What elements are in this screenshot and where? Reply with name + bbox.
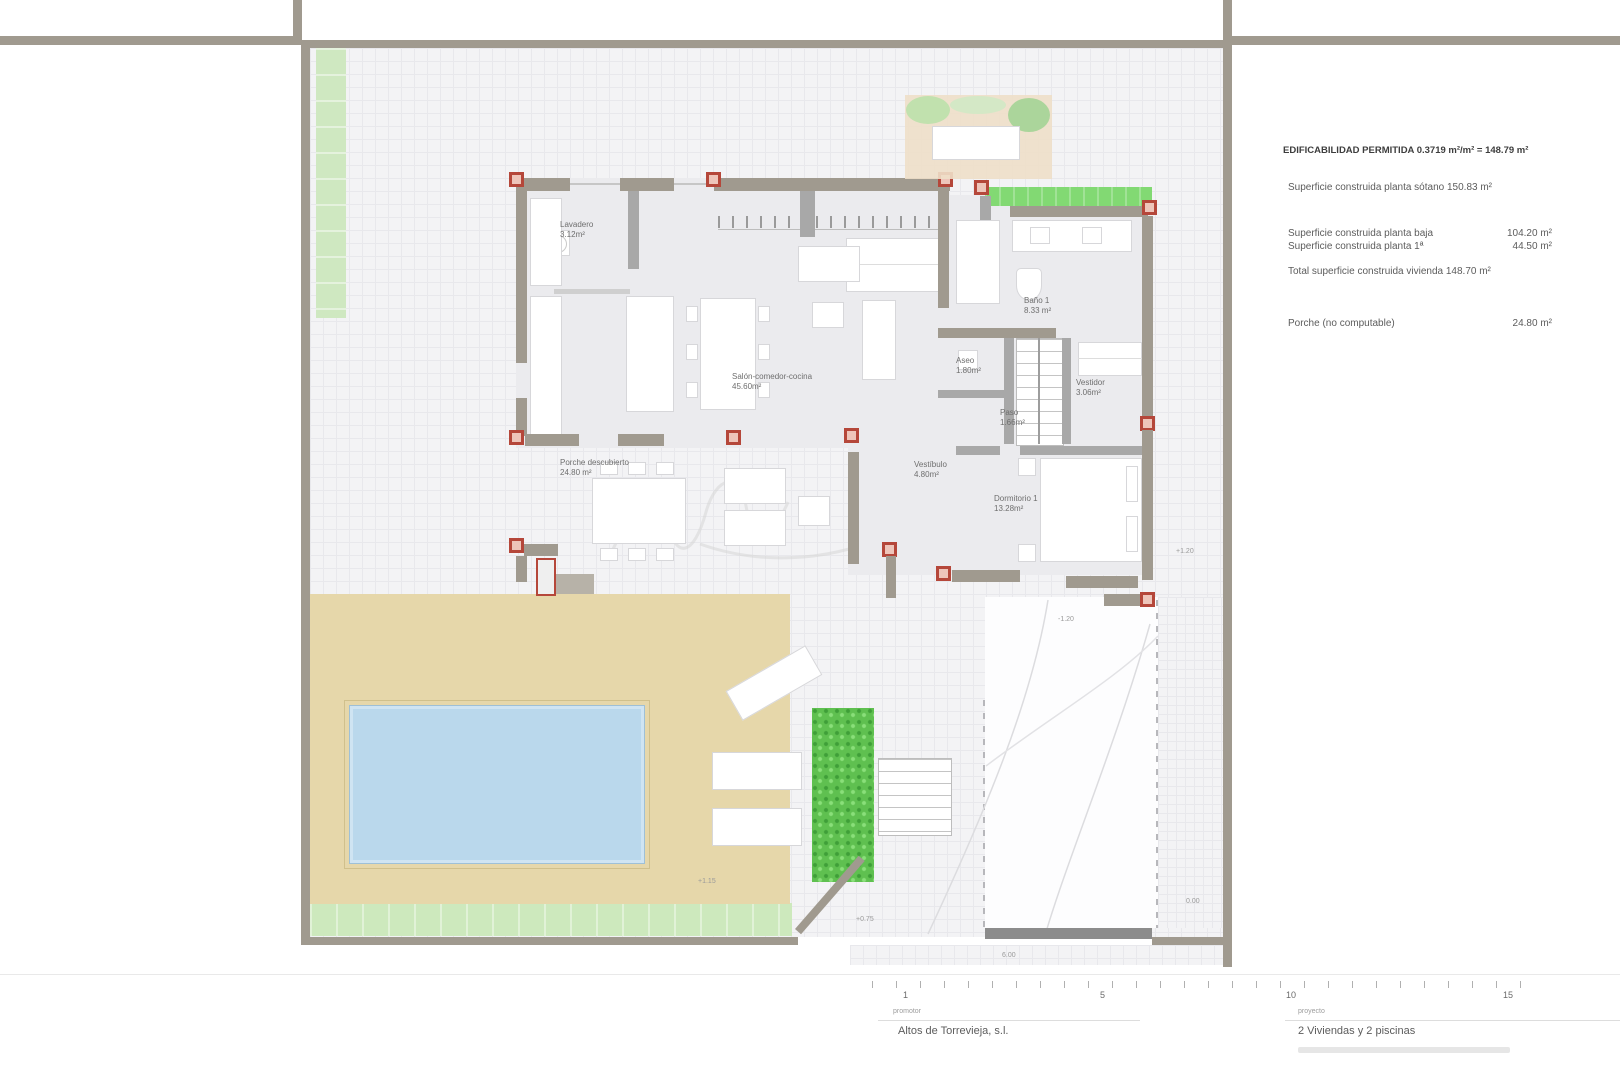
window-mullions <box>718 216 946 228</box>
shower <box>956 220 1000 304</box>
summary-row: Superficie construida planta sótano 150.… <box>1288 182 1552 193</box>
chair <box>686 306 698 322</box>
plant <box>906 96 950 124</box>
wall-segment <box>956 446 1000 455</box>
floor-plan: Lavadero3.12m² Salón-comedor-cocina45.60… <box>0 0 1620 1080</box>
scale-tick-label: 5 <box>1100 990 1105 1000</box>
nightstand <box>1018 458 1036 476</box>
neighbor-wall <box>1223 36 1620 45</box>
address-line-illegible <box>1298 1047 1510 1053</box>
promoter-name: Altos de Torrevieja, s.l. <box>898 1025 1008 1037</box>
kitchen-counter <box>530 296 562 442</box>
footer-rule <box>878 1020 1140 1021</box>
column-pillar <box>509 538 524 553</box>
scale-tick-label: 10 <box>1286 990 1296 1000</box>
pillow <box>1126 466 1138 502</box>
room-label-paso: Paso1.66m² <box>1000 408 1025 429</box>
level-annotation: +0.75 <box>856 916 874 923</box>
chair <box>656 462 674 475</box>
counter-edge <box>554 289 630 294</box>
chair <box>628 548 646 561</box>
kitchen-island <box>626 296 674 412</box>
column-pillar <box>844 428 859 443</box>
project-label: proyecto <box>1298 1008 1325 1015</box>
room-label-vestidor: Vestidor3.06m² <box>1076 378 1105 399</box>
chair <box>656 548 674 561</box>
entrance-gate <box>985 928 1152 939</box>
chair <box>758 344 770 360</box>
sheet-divider <box>0 974 1620 975</box>
wall-segment <box>1104 594 1144 606</box>
wall-segment <box>952 570 1020 582</box>
level-annotation: 0.00 <box>1186 898 1200 905</box>
wall-segment <box>516 178 570 191</box>
scale-bar-ticks <box>872 981 1528 988</box>
room-label-bano: Baño 18.33 m² <box>1024 296 1051 317</box>
room-label-aseo: Aseo1.80m² <box>956 356 981 377</box>
wall-segment <box>938 328 1056 338</box>
scale-tick-label: 15 <box>1503 990 1513 1000</box>
lounge-chair <box>724 510 786 546</box>
wall-segment <box>1066 576 1138 588</box>
column-pillar <box>706 172 721 187</box>
wall-segment <box>628 191 639 269</box>
plot-wall-top <box>301 40 1232 48</box>
wall-segment <box>938 188 949 308</box>
plant <box>950 96 1006 114</box>
promoter-label: promotor <box>893 1008 921 1015</box>
wall-segment <box>516 191 527 363</box>
cabinet-divider <box>846 264 944 265</box>
column-pillar <box>1142 200 1157 215</box>
summary-row: Total superficie construida vivienda 148… <box>1288 266 1552 277</box>
wall-segment <box>1020 446 1142 455</box>
column-pillar <box>726 430 741 445</box>
wall-segment <box>848 452 859 564</box>
wall-pier <box>800 191 815 237</box>
level-annotation: +1.15 <box>698 878 716 885</box>
scale-tick-label: 1 <box>903 990 908 1000</box>
sofa <box>798 246 860 282</box>
plot-wall-bottom <box>301 937 798 945</box>
chair <box>628 462 646 475</box>
level-annotation: +1.20 <box>1176 548 1194 555</box>
room-label-salon: Salón-comedor-cocina45.60m² <box>732 372 812 393</box>
room-label-dormitorio: Dormitorio 113.28m² <box>994 494 1038 515</box>
kitchen-counter <box>530 198 562 286</box>
summary-row: Superficie construida planta baja104.20 … <box>1288 228 1552 239</box>
window-sill <box>570 183 620 185</box>
chair <box>686 382 698 398</box>
dimension-annotation: 6.00 <box>1002 952 1016 959</box>
chair <box>758 306 770 322</box>
neighbor-wall <box>293 0 302 45</box>
wall-segment <box>1062 338 1071 444</box>
wardrobe <box>1078 342 1142 376</box>
summary-title: EDIFICABILIDAD PERMITIDA 0.3719 m²/m² = … <box>1283 145 1528 156</box>
summary-row: Porche (no computable)24.80 m² <box>1288 318 1552 329</box>
plot-wall-left <box>301 40 310 945</box>
neighbor-wall <box>0 36 296 45</box>
wall-segment <box>938 390 1006 398</box>
wall-segment <box>886 556 896 598</box>
sink <box>1030 227 1050 244</box>
plot-wall-bottom <box>1152 937 1232 945</box>
project-name: 2 Viviendas y 2 piscinas <box>1298 1025 1415 1037</box>
stair-rail <box>1038 338 1040 444</box>
coffee-table <box>812 302 844 328</box>
room-label-porche: Porche descubierto24.80 m² <box>560 458 629 479</box>
room-label-vestibulo: Vestíbulo4.80m² <box>914 460 947 481</box>
wall-segment <box>618 434 664 446</box>
sofa <box>862 300 896 380</box>
column-pillar <box>974 180 989 195</box>
nightstand <box>1018 544 1036 562</box>
chair <box>600 548 618 561</box>
staircase <box>1016 338 1064 446</box>
column-pillar <box>882 542 897 557</box>
cabinet-row <box>846 238 944 292</box>
chair <box>686 344 698 360</box>
wall-segment <box>525 434 579 446</box>
column-pillar <box>1140 592 1155 607</box>
outdoor-dining-table <box>592 478 686 544</box>
side-table <box>798 496 830 526</box>
column-pillar <box>509 430 524 445</box>
column-pillar <box>936 566 951 581</box>
summary-row: Superficie construida planta 1ª44.50 m² <box>1288 241 1552 252</box>
level-annotation: -1.20 <box>1058 616 1074 623</box>
window-sill <box>718 229 946 230</box>
wall-segment <box>516 556 527 582</box>
pillow <box>1126 516 1138 552</box>
column-pillar <box>1140 416 1155 431</box>
room-label-lavadero: Lavadero3.12m² <box>560 220 593 241</box>
wall-segment <box>1142 430 1153 580</box>
wardrobe-divider <box>1078 358 1142 359</box>
lounge-chair <box>724 468 786 504</box>
wall-segment <box>714 178 950 191</box>
wall-segment <box>1142 216 1153 416</box>
wall-segment <box>620 178 674 191</box>
wall-segment <box>1010 206 1148 217</box>
footer-rule <box>1285 1020 1620 1021</box>
plot-wall-right <box>1223 40 1232 967</box>
column-pillar <box>509 172 524 187</box>
terrace-table <box>932 126 1020 160</box>
planter-strip <box>985 187 1152 206</box>
wall-segment <box>524 544 558 556</box>
dining-table <box>700 298 756 410</box>
sink <box>1082 227 1102 244</box>
